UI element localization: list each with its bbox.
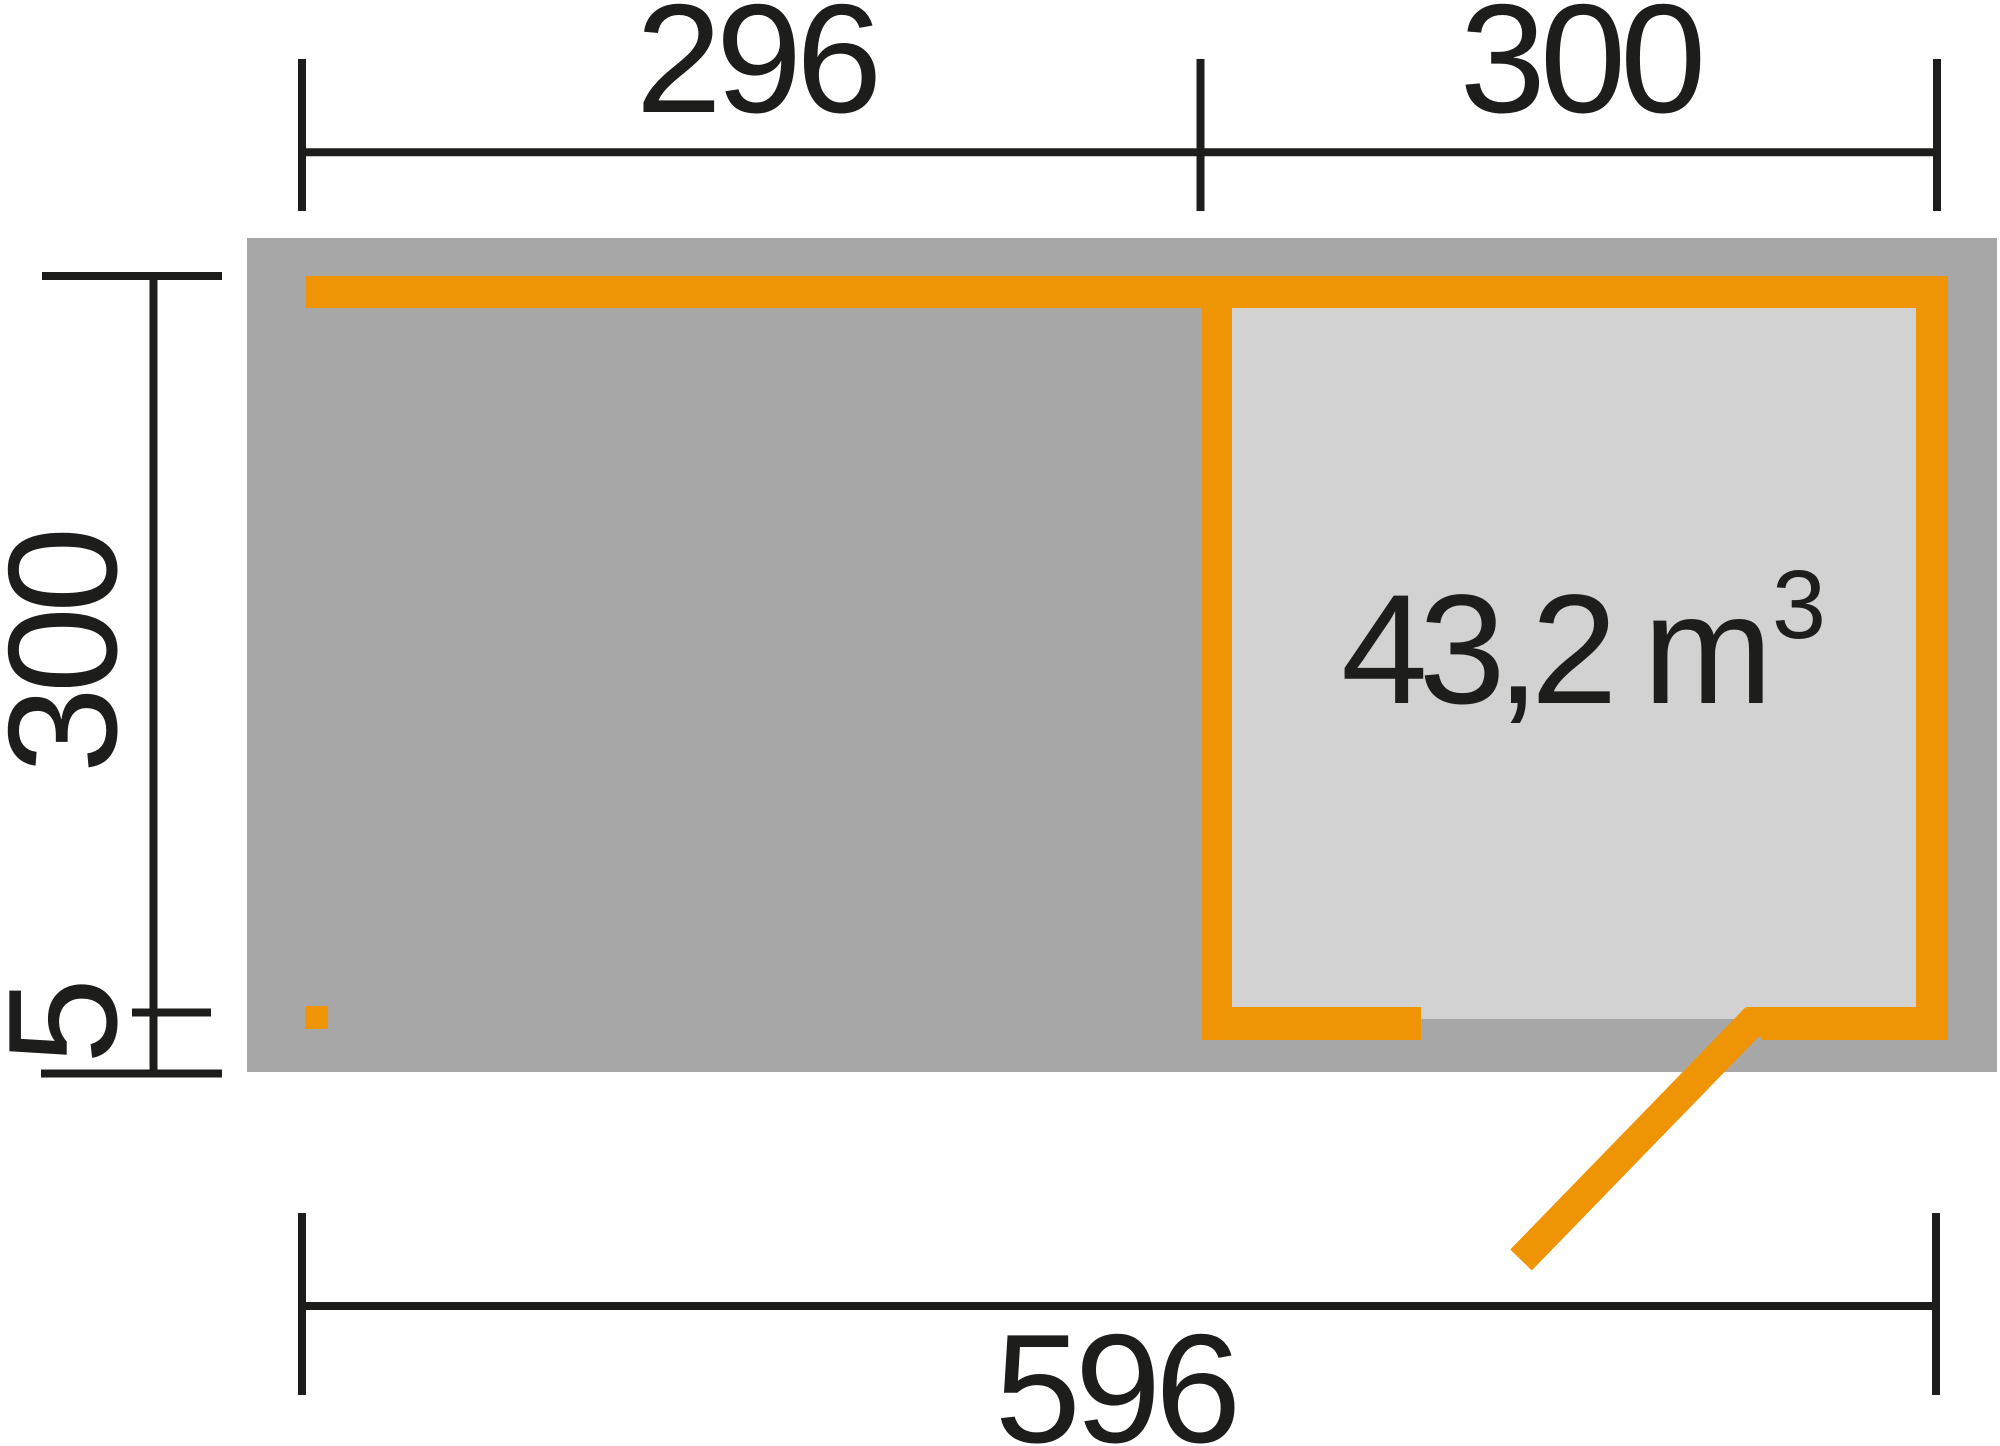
svg-text:300: 300 bbox=[1460, 0, 1701, 145]
svg-text:43,2 m: 43,2 m bbox=[1341, 563, 1764, 737]
svg-text:596: 596 bbox=[995, 1302, 1236, 1446]
svg-text:3: 3 bbox=[1772, 550, 1826, 659]
svg-text:300: 300 bbox=[0, 532, 149, 773]
svg-text:5: 5 bbox=[0, 978, 149, 1064]
svg-text:296: 296 bbox=[636, 0, 877, 145]
